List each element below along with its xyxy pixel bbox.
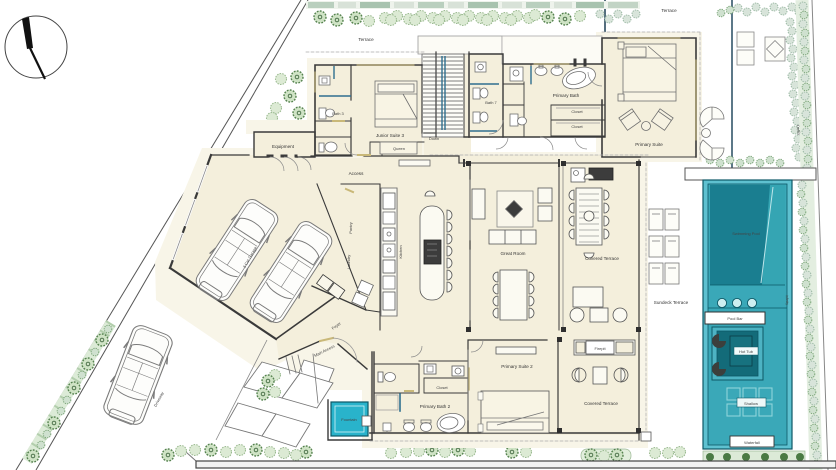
svg-text:Swimming Pool: Swimming Pool (732, 231, 760, 236)
svg-text:Fountain: Fountain (341, 417, 357, 422)
svg-text:Pantry: Pantry (348, 222, 353, 234)
svg-text:Terrace: Terrace (661, 8, 677, 13)
svg-text:Queen: Queen (393, 146, 405, 151)
svg-text:Covered Terrace: Covered Terrace (584, 401, 618, 406)
svg-text:Covered Terrace: Covered Terrace (585, 256, 619, 261)
svg-text:Bath 7: Bath 7 (485, 100, 497, 105)
svg-text:Primary Bath: Primary Bath (553, 93, 580, 98)
svg-text:Bath 3: Bath 3 (332, 111, 344, 116)
svg-text:Waterfall: Waterfall (744, 440, 760, 445)
svg-text:Closet: Closet (571, 124, 583, 129)
svg-text:Shallow: Shallow (744, 401, 758, 406)
svg-text:Pool Bar: Pool Bar (727, 316, 743, 321)
svg-text:Infinity: Infinity (785, 295, 790, 306)
svg-text:Down: Down (429, 136, 439, 141)
svg-text:Closet: Closet (571, 109, 583, 114)
svg-text:Terrace: Terrace (358, 37, 374, 42)
svg-text:Laundry: Laundry (346, 255, 351, 269)
svg-text:Firepit: Firepit (594, 346, 606, 351)
svg-text:Primary Suite: Primary Suite (635, 142, 663, 147)
svg-text:Primary Bath 2: Primary Bath 2 (420, 404, 451, 409)
svg-text:Junior Suite 3: Junior Suite 3 (376, 133, 405, 138)
svg-text:Great Room: Great Room (500, 251, 525, 256)
svg-text:Sundeck Terrace: Sundeck Terrace (654, 300, 689, 305)
svg-text:Access: Access (349, 171, 365, 176)
svg-text:Kitchen: Kitchen (398, 245, 403, 258)
svg-text:Equipment: Equipment (272, 144, 295, 149)
svg-text:Primary Suite 2: Primary Suite 2 (501, 364, 533, 369)
svg-text:Hot Tub: Hot Tub (739, 349, 754, 354)
svg-text:Closet: Closet (436, 385, 448, 390)
